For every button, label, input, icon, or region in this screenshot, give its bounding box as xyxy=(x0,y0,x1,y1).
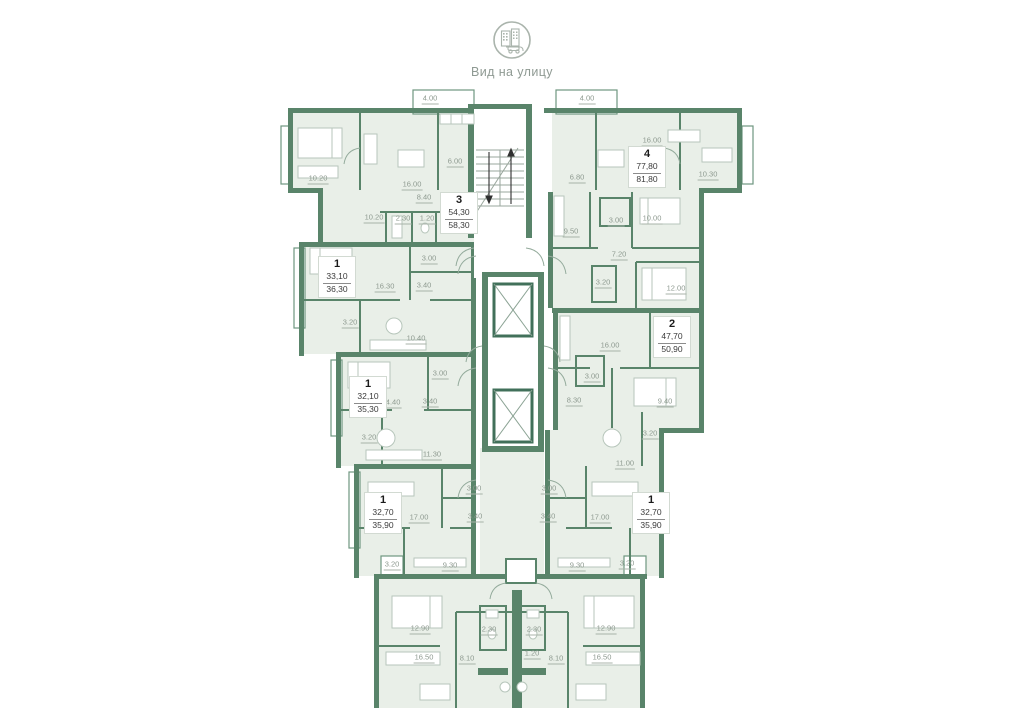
room-area-label: 2.30 xyxy=(526,626,543,636)
room-area-label: 8.30 xyxy=(566,397,583,407)
room-area-label: 3.20 xyxy=(619,560,636,570)
room-area-label: 4.00 xyxy=(579,95,596,105)
apartment-living-area: 77,80 xyxy=(633,161,661,173)
room-area-label: 1.20 xyxy=(419,215,436,225)
apartment-number: 2 xyxy=(658,318,686,331)
room-area-label: 6.00 xyxy=(447,158,464,168)
room-area-label: 10.30 xyxy=(698,171,719,181)
room-area-label: 1.20 xyxy=(524,650,541,660)
apartment-living-area: 32,10 xyxy=(354,391,382,403)
room-area-label: 8.10 xyxy=(548,655,565,665)
apartment-total-area: 35,30 xyxy=(354,404,382,415)
apartment-total-area: 58,30 xyxy=(445,220,473,231)
room-area-label: 9.30 xyxy=(569,562,586,572)
room-area-label: 9.40 xyxy=(657,398,674,408)
room-area-label: 3.40 xyxy=(416,282,433,292)
apartment-total-area: 35,90 xyxy=(637,520,665,531)
room-area-label: 3.40 xyxy=(467,513,484,523)
apartment-number: 1 xyxy=(354,378,382,391)
room-area-label: 3.00 xyxy=(584,373,601,383)
room-area-label: 11.00 xyxy=(615,460,635,470)
apartment-label: 247,7050,90 xyxy=(653,316,691,358)
room-area-label: 3.00 xyxy=(421,255,438,265)
room-area-label: 3.20 xyxy=(384,561,401,571)
room-area-label: 3.20 xyxy=(642,430,659,440)
room-area-label: 3.20 xyxy=(342,319,359,329)
room-area-label: 8.10 xyxy=(459,655,476,665)
room-area-label: 3.40 xyxy=(540,513,557,523)
room-area-label: 3.00 xyxy=(466,485,483,495)
apartment-total-area: 81,80 xyxy=(633,174,661,185)
room-area-label: 10.00 xyxy=(642,215,663,225)
apartment-living-area: 32,70 xyxy=(369,507,397,519)
room-area-label: 16.00 xyxy=(642,137,663,147)
room-area-label: 17.00 xyxy=(590,514,611,524)
room-area-label: 3.20 xyxy=(361,434,378,444)
room-area-label: 12.90 xyxy=(596,625,617,635)
room-area-label: 10.20 xyxy=(308,175,329,185)
room-area-label: 16.50 xyxy=(414,654,435,664)
room-area-label: 3.00 xyxy=(432,370,449,380)
room-area-label: 3.20 xyxy=(595,279,612,289)
apartment-label: 133,1036,30 xyxy=(318,256,356,298)
room-area-label: 12.00 xyxy=(666,285,687,295)
room-area-label: 9.30 xyxy=(442,562,459,572)
room-area-label: 16.00 xyxy=(402,181,423,191)
floor-plan: 4.0010.2016.006.008.4010.202.301.204.001… xyxy=(0,0,1024,708)
apartment-label: 132,7035,90 xyxy=(364,492,402,534)
room-area-label: 3.00 xyxy=(541,485,558,495)
plan-labels-layer: 4.0010.2016.006.008.4010.202.301.204.001… xyxy=(0,0,1024,708)
apartment-total-area: 50,90 xyxy=(658,344,686,355)
floor-plan-page: Вид на улицу xyxy=(0,0,1024,708)
apartment-number: 1 xyxy=(323,258,351,271)
room-area-label: 16.50 xyxy=(592,654,613,664)
apartment-total-area: 35,90 xyxy=(369,520,397,531)
room-area-label: 2.30 xyxy=(481,626,498,636)
apartment-number: 1 xyxy=(637,494,665,507)
room-area-label: 7.20 xyxy=(611,251,628,261)
room-area-label: 11.30 xyxy=(422,451,442,461)
room-area-label: 16.30 xyxy=(375,283,396,293)
apartment-number: 3 xyxy=(445,194,473,207)
apartment-label: 477,8081,80 xyxy=(628,146,666,188)
apartment-label: 354,3058,30 xyxy=(440,192,478,234)
room-area-label: 16.00 xyxy=(600,342,621,352)
room-area-label: 4.00 xyxy=(422,95,439,105)
room-area-label: 10.20 xyxy=(364,214,385,224)
apartment-label: 132,7035,90 xyxy=(632,492,670,534)
room-area-label: 9.50 xyxy=(563,228,580,238)
apartment-label: 132,1035,30 xyxy=(349,376,387,418)
apartment-total-area: 36,30 xyxy=(323,284,351,295)
room-area-label: 10.40 xyxy=(406,335,427,345)
room-area-label: 8.40 xyxy=(416,194,433,204)
room-area-label: 6.80 xyxy=(569,174,586,184)
apartment-living-area: 47,70 xyxy=(658,331,686,343)
room-area-label: 3.40 xyxy=(422,398,439,408)
apartment-number: 4 xyxy=(633,148,661,161)
apartment-living-area: 32,70 xyxy=(637,507,665,519)
room-area-label: 17.00 xyxy=(409,514,430,524)
room-area-label: 12.90 xyxy=(410,625,431,635)
apartment-living-area: 54,30 xyxy=(445,207,473,219)
room-area-label: 3.00 xyxy=(608,217,625,227)
room-area-label: 2.30 xyxy=(395,215,412,225)
apartment-number: 1 xyxy=(369,494,397,507)
apartment-living-area: 33,10 xyxy=(323,271,351,283)
